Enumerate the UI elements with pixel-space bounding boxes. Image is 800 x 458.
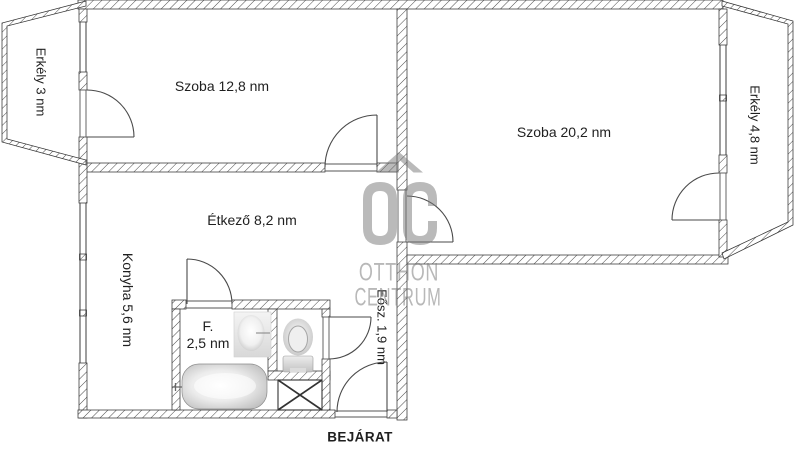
wall-room-small-bottom (86, 163, 325, 172)
room-label-konyha: Konyha 5,6 nm (120, 253, 136, 347)
wall-bath-top-right (232, 300, 330, 309)
wall-bath-top-left (172, 300, 186, 309)
door-room-small (325, 115, 377, 167)
opening-room-small-door (325, 164, 377, 171)
floorplan-drawing (0, 0, 800, 458)
door-wc (329, 317, 371, 359)
wall-wc-right-lower (322, 359, 330, 410)
wall-left-seg2 (79, 72, 87, 90)
window-balcony-left (80, 22, 86, 72)
room-label-etkezo: Étkező 8,2 nm (207, 212, 297, 228)
room-label-bathroom: F. 2,5 nm (187, 318, 230, 352)
window-tick (80, 310, 87, 316)
wall-wc-right-upper (322, 309, 330, 317)
toilet-icon (283, 319, 313, 373)
room-label-szoba-large: Szoba 20,2 nm (517, 124, 611, 140)
opening-balcony-left-door (80, 90, 86, 137)
wall-wc-bottom (268, 371, 330, 380)
door-balcony-left (87, 90, 134, 137)
wall-right-seg1 (719, 9, 727, 45)
room-label-szoba-small: Szoba 12,8 nm (175, 78, 269, 94)
wall-left-seg3 (79, 137, 87, 203)
watermark-line2: CENTRUM (354, 283, 441, 312)
logo-letter-o (363, 182, 397, 245)
door-bathroom (187, 259, 232, 304)
window-kitchen (80, 203, 86, 363)
logo-letter-c (403, 182, 437, 245)
balcony-label-right: Erkély 4,8 nm (748, 85, 763, 164)
window-tick (720, 95, 727, 101)
door-balcony-right (672, 173, 719, 220)
balcony-label-left: Erkély 3 nm (34, 48, 49, 117)
wall-bottom-right (387, 410, 397, 418)
wall-top (78, 0, 723, 9)
bathtub-icon (172, 364, 267, 409)
opening-balcony-right-door (720, 173, 726, 220)
wall-right-seg2 (719, 155, 727, 173)
sink-icon (234, 312, 271, 357)
opening-wc-door (323, 317, 329, 359)
bathroom-abbr: F. (187, 318, 230, 335)
floorplan: OTTHON CENTRUM Szoba 12,8 nm Szoba 20,2 … (0, 0, 800, 458)
bathroom-area: 2,5 nm (187, 335, 230, 352)
opening-entrance-door (335, 411, 387, 417)
door-entrance (337, 362, 387, 412)
shaft-icon (278, 380, 322, 410)
opening-bath-door (186, 301, 232, 308)
wall-left-seg1 (79, 9, 87, 22)
logo-roof-left (376, 152, 399, 173)
wall-bath-left (172, 309, 180, 410)
window-tick (80, 254, 87, 260)
wall-room-large-bottom (407, 255, 728, 264)
wall-bottom-left (78, 410, 335, 418)
entrance-label: BEJÁRAT (327, 430, 393, 445)
